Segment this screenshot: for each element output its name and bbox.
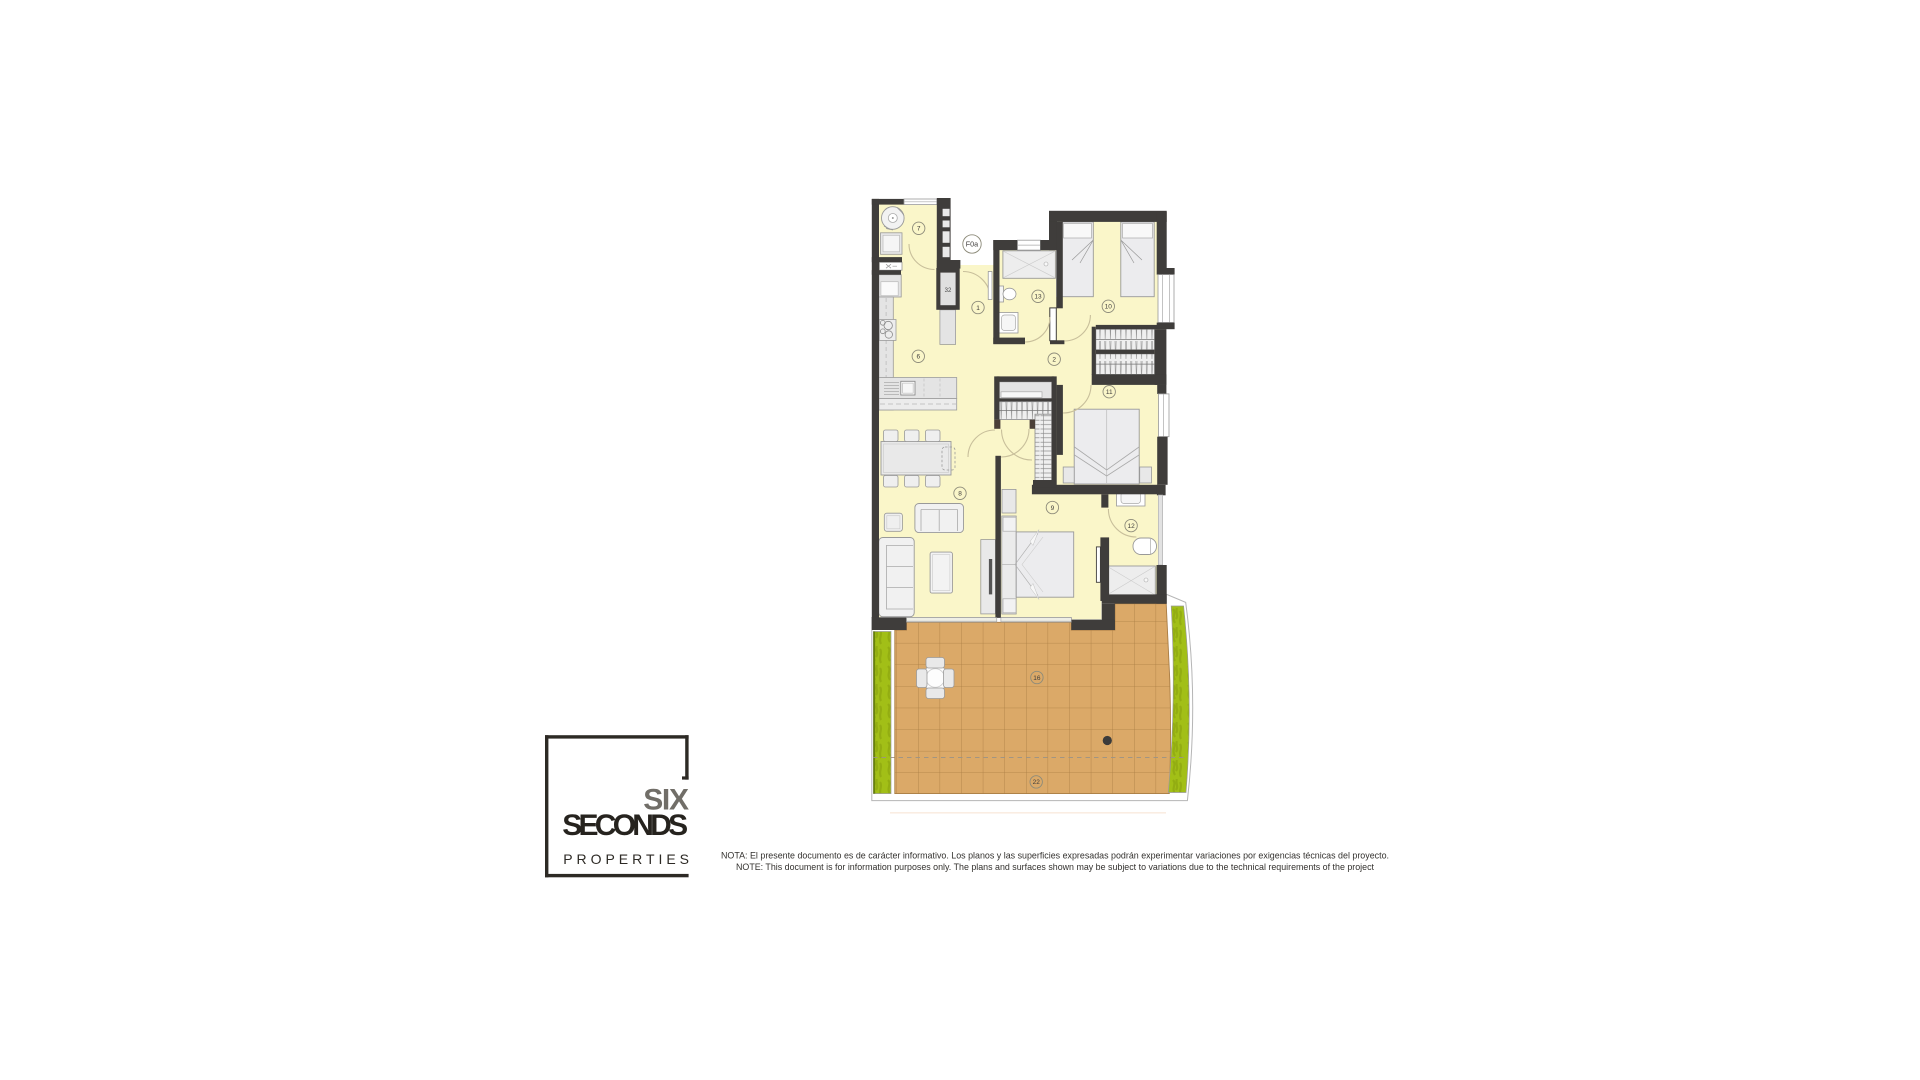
svg-text:F0a: F0a [966, 240, 978, 249]
svg-text:7: 7 [917, 226, 921, 233]
svg-text:10: 10 [1105, 304, 1113, 311]
svg-text:9: 9 [1051, 505, 1055, 512]
svg-text:NOTE: This document is for inf: NOTE: This document is for information p… [736, 862, 1374, 872]
svg-text:6: 6 [916, 354, 920, 361]
svg-text:SECONDS: SECONDS [562, 809, 688, 842]
svg-text:12: 12 [1127, 523, 1135, 530]
svg-text:11: 11 [1106, 389, 1113, 396]
svg-text:NOTA: El presente documento es: NOTA: El presente documento es de caráct… [721, 851, 1389, 861]
svg-text:13: 13 [1034, 294, 1042, 301]
svg-text:32: 32 [945, 288, 952, 294]
svg-text:1: 1 [976, 305, 980, 312]
svg-text:16: 16 [1033, 675, 1041, 682]
svg-text:PROPERTIES: PROPERTIES [563, 851, 689, 867]
svg-text:8: 8 [958, 491, 962, 498]
svg-text:22: 22 [1033, 779, 1041, 786]
svg-text:2: 2 [1052, 357, 1056, 364]
